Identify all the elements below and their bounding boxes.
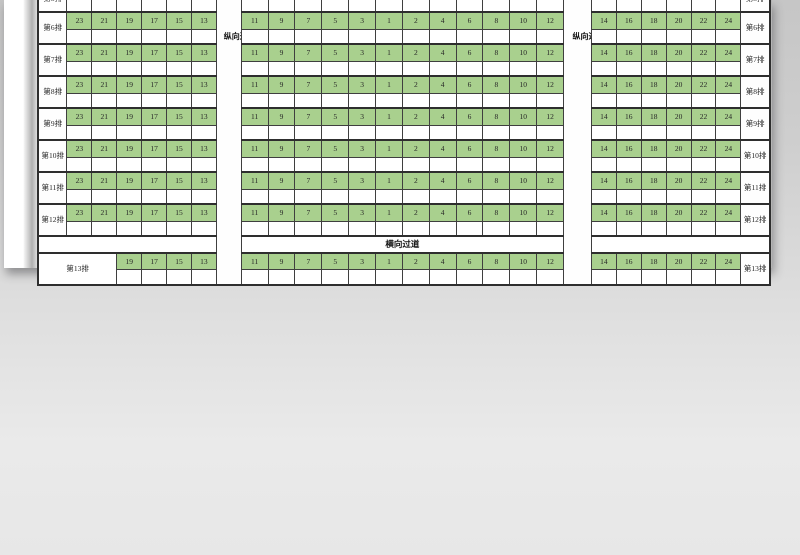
empty-cell	[117, 126, 142, 141]
seat-cell: 10	[510, 44, 537, 62]
seat-cell: 24	[716, 44, 741, 62]
seat-cell: 12	[537, 76, 564, 94]
seat-cell: 4	[429, 140, 456, 158]
seat-cell: 9	[268, 12, 295, 30]
seat-cell: 21	[92, 44, 117, 62]
seat-cell: 5	[322, 172, 349, 190]
empty-cell	[92, 190, 117, 205]
empty-cell	[295, 126, 322, 141]
empty-cell	[456, 126, 483, 141]
seat-cell: 19	[117, 204, 142, 222]
empty-cell	[537, 62, 564, 77]
empty-cell	[483, 30, 510, 45]
seat-cell: 21	[92, 108, 117, 126]
seat-cell: 22	[691, 12, 716, 30]
seat-cell: 11	[241, 108, 268, 126]
empty-cell	[295, 158, 322, 173]
empty-cell	[616, 30, 641, 45]
seat-cell: 22	[691, 44, 716, 62]
seat-cell: 17	[142, 140, 167, 158]
seat-cell: 21	[92, 172, 117, 190]
seat-cell: 19	[117, 140, 142, 158]
empty-cell	[716, 94, 741, 109]
empty-cell	[716, 62, 741, 77]
empty-cell	[641, 94, 666, 109]
empty-cell	[716, 30, 741, 45]
empty-cell	[322, 222, 349, 237]
empty-cell	[191, 94, 216, 109]
empty-cell	[191, 158, 216, 173]
seat-cell: 18	[641, 12, 666, 30]
seat-cell: 9	[268, 140, 295, 158]
empty-cell	[537, 94, 564, 109]
seat-cell: 15	[167, 172, 192, 190]
empty-cell	[142, 270, 167, 286]
empty-cell	[241, 30, 268, 45]
empty-cell	[117, 222, 142, 237]
empty-cell	[429, 270, 456, 286]
empty-cell	[191, 30, 216, 45]
seat-cell: 4	[429, 204, 456, 222]
seat-cell: 15	[167, 204, 192, 222]
empty-cell	[456, 0, 483, 12]
empty-cell	[295, 62, 322, 77]
empty-cell	[117, 158, 142, 173]
seat-cell: 6	[456, 76, 483, 94]
empty-cell	[67, 158, 92, 173]
empty-cell	[92, 62, 117, 77]
empty-cell	[376, 190, 403, 205]
empty-cell	[117, 30, 142, 45]
empty-cell	[456, 158, 483, 173]
empty-cell	[191, 126, 216, 141]
empty-cell	[241, 158, 268, 173]
seat-cell: 10	[510, 12, 537, 30]
empty-cell	[241, 270, 268, 286]
seat-cell: 17	[142, 76, 167, 94]
empty-cell	[167, 94, 192, 109]
seat-cell: 16	[616, 44, 641, 62]
seat-cell: 14	[591, 44, 616, 62]
seat-cell: 15	[167, 108, 192, 126]
empty-cell	[142, 30, 167, 45]
seat-cell: 10	[510, 108, 537, 126]
seat-cell: 18	[641, 108, 666, 126]
empty-cell	[117, 190, 142, 205]
seat-cell: 8	[483, 12, 510, 30]
empty-cell	[268, 190, 295, 205]
empty-cell	[483, 0, 510, 12]
seat-cell: 15	[167, 12, 192, 30]
seat-cell: 7	[295, 76, 322, 94]
empty-cell	[268, 222, 295, 237]
empty-cell	[456, 222, 483, 237]
empty-cell	[191, 270, 216, 286]
seat-cell: 8	[483, 76, 510, 94]
empty-cell	[322, 30, 349, 45]
seat-cell: 12	[537, 12, 564, 30]
empty-cell	[295, 190, 322, 205]
empty-cell	[142, 222, 167, 237]
row-label-partial-text: 第5排	[39, 0, 66, 3]
empty-cell	[483, 126, 510, 141]
row-label-left: 第11排	[38, 172, 67, 204]
empty-cell	[429, 30, 456, 45]
seat-cell: 17	[142, 172, 167, 190]
row-label-13: 第13排	[38, 253, 117, 285]
seat-cell: 11	[241, 76, 268, 94]
seat-cell: 4	[429, 172, 456, 190]
empty-cell	[349, 0, 376, 12]
seat-cell: 11	[241, 253, 268, 270]
empty-cell	[641, 0, 666, 12]
seat-cell: 2	[402, 172, 429, 190]
empty-cell	[92, 126, 117, 141]
empty-cell	[92, 30, 117, 45]
empty-cell	[456, 190, 483, 205]
seat-cell: 20	[666, 44, 691, 62]
seat-cell: 9	[268, 204, 295, 222]
seat-cell: 24	[716, 76, 741, 94]
seat-cell: 7	[295, 44, 322, 62]
seat-cell: 7	[295, 108, 322, 126]
empty-cell	[268, 62, 295, 77]
seat-cell: 5	[322, 44, 349, 62]
seat-cell: 21	[92, 204, 117, 222]
seat-cell: 1	[376, 108, 403, 126]
seat-cell: 13	[191, 108, 216, 126]
vertical-aisle-left: 纵向过道	[216, 0, 241, 285]
empty-cell	[537, 126, 564, 141]
empty-cell	[376, 30, 403, 45]
empty-cell	[510, 94, 537, 109]
seat-cell: 13	[191, 12, 216, 30]
hand-with-pen-photo	[480, 140, 800, 555]
seat-cell: 6	[456, 204, 483, 222]
empty-cell	[241, 190, 268, 205]
seat-cell: 1	[376, 76, 403, 94]
empty-cell	[322, 270, 349, 286]
seat-cell: 14	[591, 108, 616, 126]
empty-cell	[117, 94, 142, 109]
empty-cell	[322, 126, 349, 141]
seat-cell: 22	[691, 108, 716, 126]
seat-cell: 23	[67, 12, 92, 30]
seat-cell: 2	[402, 12, 429, 30]
seat-cell: 2	[402, 253, 429, 270]
seat-cell: 17	[142, 44, 167, 62]
seat-cell: 16	[616, 108, 641, 126]
empty-cell	[591, 62, 616, 77]
seat-cell: 14	[591, 12, 616, 30]
seat-cell: 15	[167, 44, 192, 62]
empty-cell	[641, 30, 666, 45]
empty-cell	[268, 126, 295, 141]
seat-cell: 24	[716, 12, 741, 30]
empty-cell	[402, 62, 429, 77]
empty-cell	[142, 0, 167, 12]
empty-cell	[616, 0, 641, 12]
empty-cell	[429, 94, 456, 109]
seat-cell: 16	[616, 76, 641, 94]
seat-cell: 18	[641, 44, 666, 62]
seat-cell: 4	[429, 253, 456, 270]
empty-cell	[456, 94, 483, 109]
seat-cell: 19	[117, 253, 142, 270]
seat-cell: 1	[376, 12, 403, 30]
empty-cell	[666, 94, 691, 109]
sheet-edge-highlight	[4, 0, 24, 268]
row-label-right: 第8排	[741, 76, 770, 108]
seat-cell: 21	[92, 12, 117, 30]
seat-cell: 6	[456, 140, 483, 158]
empty-cell	[67, 126, 92, 141]
row-label-right: 第6排	[741, 12, 770, 44]
empty-cell	[167, 158, 192, 173]
empty-cell	[376, 0, 403, 12]
seat-cell: 9	[268, 108, 295, 126]
empty-cell	[456, 62, 483, 77]
empty-cell	[167, 62, 192, 77]
seat-cell: 3	[349, 12, 376, 30]
empty-cell	[616, 126, 641, 141]
seat-cell: 3	[349, 172, 376, 190]
seat-cell: 13	[191, 253, 216, 270]
seat-cell: 21	[92, 76, 117, 94]
empty-cell	[349, 62, 376, 77]
seat-cell: 11	[241, 172, 268, 190]
empty-cell	[241, 62, 268, 77]
seat-cell: 7	[295, 253, 322, 270]
empty-cell	[241, 94, 268, 109]
empty-cell	[402, 94, 429, 109]
empty-cell	[142, 94, 167, 109]
row-label-left: 第12排	[38, 204, 67, 236]
seat-cell: 6	[456, 44, 483, 62]
seat-cell: 19	[117, 44, 142, 62]
seat-cell: 24	[716, 108, 741, 126]
empty-cell	[167, 30, 192, 45]
seat-cell: 9	[268, 172, 295, 190]
seat-cell: 21	[92, 140, 117, 158]
empty-cell	[349, 30, 376, 45]
template-preview-page: 第5排纵向过道纵向过道第5排第6排23211917151311975312468…	[0, 0, 800, 555]
empty-cell	[117, 62, 142, 77]
seat-cell: 7	[295, 204, 322, 222]
empty-cell	[716, 0, 741, 12]
empty-cell	[429, 62, 456, 77]
empty-cell	[402, 222, 429, 237]
empty-cell	[666, 62, 691, 77]
seat-cell: 11	[241, 12, 268, 30]
empty-cell	[483, 94, 510, 109]
empty-cell	[322, 62, 349, 77]
seat-cell: 19	[117, 12, 142, 30]
empty-cell	[510, 62, 537, 77]
seat-cell: 23	[67, 204, 92, 222]
empty-cell	[429, 126, 456, 141]
seat-cell: 5	[322, 12, 349, 30]
seat-cell: 6	[456, 108, 483, 126]
seat-cell: 20	[666, 76, 691, 94]
empty-cell	[510, 30, 537, 45]
empty-cell	[641, 126, 666, 141]
empty-cell	[510, 0, 537, 12]
seat-cell: 2	[402, 44, 429, 62]
empty-cell	[322, 94, 349, 109]
empty-cell	[376, 158, 403, 173]
empty-cell	[142, 126, 167, 141]
row-label-right: 第9排	[741, 108, 770, 140]
empty-cell	[591, 0, 616, 12]
empty-cell	[376, 126, 403, 141]
empty-cell	[92, 158, 117, 173]
horizontal-aisle-left	[38, 236, 216, 253]
empty-cell	[268, 158, 295, 173]
seat-cell: 1	[376, 44, 403, 62]
seat-cell: 3	[349, 204, 376, 222]
seat-cell: 11	[241, 140, 268, 158]
empty-cell	[591, 30, 616, 45]
seat-cell: 11	[241, 204, 268, 222]
empty-cell	[666, 126, 691, 141]
seat-cell: 7	[295, 140, 322, 158]
empty-cell	[616, 94, 641, 109]
empty-cell	[402, 0, 429, 12]
empty-cell	[376, 62, 403, 77]
empty-cell	[295, 94, 322, 109]
seat-cell: 19	[117, 172, 142, 190]
seat-cell: 17	[142, 12, 167, 30]
empty-cell	[322, 0, 349, 12]
seat-cell: 14	[591, 76, 616, 94]
seat-cell: 2	[402, 76, 429, 94]
seat-cell: 5	[322, 204, 349, 222]
seat-cell: 5	[322, 76, 349, 94]
seat-cell: 3	[349, 76, 376, 94]
seat-cell: 1	[376, 253, 403, 270]
seat-cell: 13	[191, 172, 216, 190]
empty-cell	[402, 30, 429, 45]
row-label-left: 第8排	[38, 76, 67, 108]
row-label-right: 第7排	[741, 44, 770, 76]
seat-cell: 15	[167, 253, 192, 270]
seat-cell: 19	[117, 76, 142, 94]
empty-cell	[666, 30, 691, 45]
seat-cell: 20	[666, 108, 691, 126]
empty-cell	[349, 126, 376, 141]
empty-cell	[142, 62, 167, 77]
empty-cell	[349, 222, 376, 237]
empty-cell	[167, 222, 192, 237]
empty-cell	[537, 0, 564, 12]
empty-cell	[483, 62, 510, 77]
seat-cell: 12	[537, 44, 564, 62]
empty-cell	[429, 0, 456, 12]
empty-cell	[167, 126, 192, 141]
empty-cell	[402, 158, 429, 173]
seat-cell: 7	[295, 172, 322, 190]
empty-cell	[67, 190, 92, 205]
seat-cell: 18	[641, 76, 666, 94]
empty-cell	[67, 222, 92, 237]
seat-cell: 4	[429, 76, 456, 94]
seat-cell: 17	[142, 204, 167, 222]
seat-cell: 9	[268, 253, 295, 270]
empty-cell	[537, 30, 564, 45]
empty-cell	[429, 222, 456, 237]
empty-cell	[268, 30, 295, 45]
empty-cell	[376, 270, 403, 286]
seat-cell: 5	[322, 140, 349, 158]
vertical-aisle-label: 纵向过道	[573, 0, 583, 42]
seat-cell: 1	[376, 204, 403, 222]
empty-cell	[67, 62, 92, 77]
seat-cell: 5	[322, 253, 349, 270]
empty-cell	[349, 270, 376, 286]
empty-cell	[402, 190, 429, 205]
empty-cell	[456, 30, 483, 45]
seat-cell: 15	[167, 140, 192, 158]
row-label-left: 第6排	[38, 12, 67, 44]
empty-cell	[117, 270, 142, 286]
row-label-left: 第10排	[38, 140, 67, 172]
seat-cell: 5	[322, 108, 349, 126]
empty-cell	[591, 126, 616, 141]
empty-cell	[142, 158, 167, 173]
empty-cell	[691, 62, 716, 77]
empty-cell	[191, 0, 216, 12]
empty-cell	[191, 62, 216, 77]
empty-cell	[241, 0, 268, 12]
empty-cell	[322, 158, 349, 173]
empty-cell	[241, 222, 268, 237]
empty-cell	[191, 190, 216, 205]
seat-cell: 9	[268, 44, 295, 62]
seat-cell: 13	[191, 76, 216, 94]
seat-cell: 23	[67, 172, 92, 190]
seat-cell: 23	[67, 108, 92, 126]
empty-cell	[349, 94, 376, 109]
empty-cell	[691, 30, 716, 45]
seat-cell: 8	[483, 44, 510, 62]
empty-cell	[591, 94, 616, 109]
seat-cell: 1	[376, 172, 403, 190]
empty-cell	[92, 94, 117, 109]
row-label-partial-text: 第5排	[741, 0, 769, 3]
empty-cell	[510, 126, 537, 141]
empty-cell	[402, 126, 429, 141]
seat-cell: 6	[456, 172, 483, 190]
empty-cell	[295, 30, 322, 45]
empty-cell	[349, 190, 376, 205]
seat-cell: 3	[349, 140, 376, 158]
seat-cell: 20	[666, 12, 691, 30]
empty-cell	[349, 158, 376, 173]
empty-cell	[322, 190, 349, 205]
vertical-aisle-label: 纵向过道	[224, 0, 234, 42]
empty-cell	[716, 126, 741, 141]
empty-cell	[67, 94, 92, 109]
empty-cell	[666, 0, 691, 12]
empty-cell	[92, 0, 117, 12]
seat-cell: 3	[349, 108, 376, 126]
seat-cell: 11	[241, 44, 268, 62]
seat-cell: 10	[510, 76, 537, 94]
seat-cell: 7	[295, 12, 322, 30]
seat-cell: 17	[142, 108, 167, 126]
empty-cell	[268, 94, 295, 109]
